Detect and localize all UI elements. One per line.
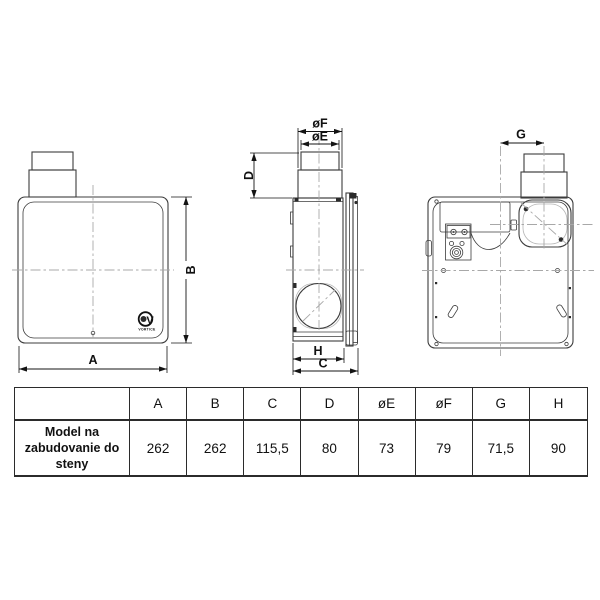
value-d: 80 <box>301 421 358 475</box>
header-b: B <box>187 388 244 419</box>
front-duct-lower <box>29 170 76 197</box>
header-c: C <box>244 388 301 419</box>
dim-oe-label: øE <box>312 130 328 144</box>
dimension-table: A B C D øE øF G H Model na zabudovanie d… <box>14 387 588 477</box>
dim-b-label: B <box>184 265 198 274</box>
header-g: G <box>473 388 530 419</box>
model-row-label: Model na zabudovanie do steny <box>15 421 130 475</box>
dim-of-label: øF <box>312 117 328 131</box>
back-clip <box>511 220 517 230</box>
side-tab-upper <box>291 212 294 224</box>
dim-c: C <box>293 348 358 375</box>
value-c: 115,5 <box>244 421 301 475</box>
logo-initial: V <box>146 315 154 327</box>
fan-dimension-drawing: V VORTICE A B <box>0 0 600 600</box>
table-header-row: A B C D øE øF G H <box>15 388 587 421</box>
logo-wordmark: VORTICE <box>138 328 156 332</box>
fan-outlet <box>519 200 571 247</box>
dim-d-label: D <box>242 171 256 180</box>
side-tab-lower <box>291 246 294 257</box>
dim-a: A <box>19 346 167 373</box>
dim-b: B <box>171 197 198 343</box>
header-oe: øE <box>359 388 416 419</box>
terminal-block <box>446 224 472 260</box>
vortice-logo: V VORTICE <box>138 312 156 331</box>
side-flange <box>346 193 358 346</box>
front-duct-upper <box>32 152 73 170</box>
back-side-notch <box>426 241 432 257</box>
dim-a-label: A <box>88 353 97 367</box>
table-data-row: Model na zabudovanie do steny 262 262 11… <box>15 421 587 475</box>
back-recess <box>440 202 510 232</box>
header-empty-cell <box>15 388 130 419</box>
dim-oe: øE <box>301 130 339 151</box>
scroll-curve <box>471 233 510 250</box>
front-view: V VORTICE A B <box>12 152 198 373</box>
header-of: øF <box>416 388 473 419</box>
mounting-slot-right <box>556 304 568 318</box>
value-a: 262 <box>130 421 187 475</box>
dim-d: D <box>242 153 299 198</box>
value-h: 90 <box>530 421 587 475</box>
value-oe: 73 <box>359 421 416 475</box>
dim-g-label: G <box>516 128 526 142</box>
technical-drawing-page: V VORTICE A B <box>0 0 600 600</box>
header-a: A <box>130 388 187 419</box>
cable-gland <box>450 246 463 259</box>
value-b: 262 <box>187 421 244 475</box>
value-g: 71,5 <box>473 421 530 475</box>
side-duct-upper <box>301 152 339 170</box>
value-of: 79 <box>416 421 473 475</box>
side-duct-lower <box>298 170 342 198</box>
dim-c-label: C <box>318 357 327 371</box>
header-h: H <box>530 388 587 419</box>
back-view: G <box>422 128 594 357</box>
header-d: D <box>301 388 358 419</box>
mounting-slot-left <box>447 305 459 319</box>
dim-g: G <box>501 128 545 144</box>
side-view: øF øE D H C <box>242 117 364 376</box>
